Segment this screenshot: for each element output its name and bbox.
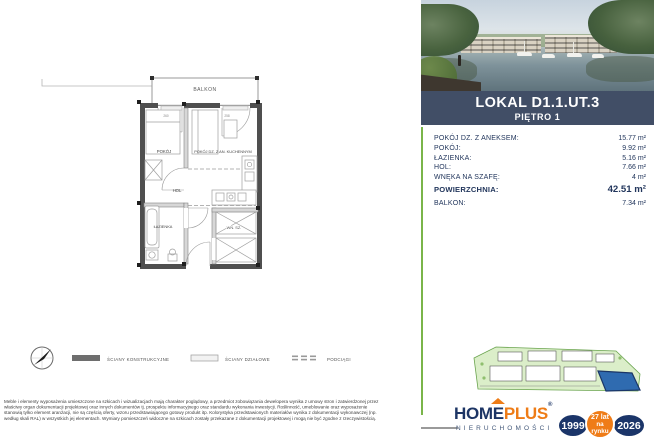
closet-wardrobes: [216, 212, 256, 262]
badge-2026-text: 2026: [614, 420, 644, 432]
area-value: 9.92 m²: [622, 145, 646, 152]
dim-label-2: 258: [224, 114, 230, 118]
floor-plan: BALKON: [0, 0, 420, 443]
flyer-page: BALKON: [0, 0, 654, 443]
unit-title: LOKAL D1.1.UT.3: [421, 95, 654, 111]
dim-label-1: 260: [163, 114, 169, 118]
legend-swatch-beams: [292, 356, 316, 361]
bathroom-door-opening: [184, 208, 188, 228]
disclaimer-line-1: Meble i elementy wyposażenia umieszczone…: [4, 399, 379, 404]
legend-label-partition: ŚCIANY DZIAŁOWE: [225, 357, 270, 362]
area-value: 15.77 m²: [618, 135, 646, 142]
badge-years-on-market: 27 lat na rynku: [585, 409, 615, 439]
boat: [567, 53, 582, 57]
badge-market-text: na rynku: [587, 421, 613, 435]
homeplus-logo: HOMEPLUS® NIERUCHOMOŚCI: [454, 404, 572, 432]
area-label: POWIERZCHNIA:: [434, 185, 499, 194]
area-value: 5.16 m²: [622, 155, 646, 162]
area-label: ŁAZIENKA:: [434, 155, 472, 162]
area-value: 4 m²: [632, 174, 646, 181]
disclaimer-text: Meble i elementy wyposażenia umieszczone…: [4, 399, 379, 421]
balcony-label: BALKON: [193, 87, 216, 93]
area-row-total: POWIERZCHNIA: 42.51 m²: [434, 184, 646, 195]
green-accent-line: [421, 127, 423, 415]
area-table: POKÓJ DZ. Z ANEKSEM: 15.77 m² POKÓJ: 9.9…: [434, 135, 646, 210]
area-row: POKÓJ DZ. Z ANEKSEM: 15.77 m²: [434, 135, 646, 142]
unit-info-panel: LOKAL D1.1.UT.3 PIĘTRO 1 POKÓJ DZ. Z ANE…: [421, 0, 654, 443]
logo-wordmark: HOMEPLUS®: [454, 404, 572, 424]
badge-years-text: 27 lat: [587, 414, 613, 421]
logo-plus: PLUS: [504, 404, 548, 423]
room-label-lazienka: ŁAZIENKA: [154, 224, 173, 229]
boat-mast: [524, 41, 525, 52]
footer-divider: [421, 427, 458, 429]
closet-opening: [212, 238, 216, 260]
disclaimer-line-4: według skali RAL) w wszystkich jej eleme…: [4, 416, 376, 421]
logo-hom: HOM: [454, 404, 493, 423]
boat: [542, 54, 555, 58]
area-value: 7.66 m²: [622, 164, 646, 171]
area-row: BALKON: 7.34 m²: [434, 200, 646, 207]
person-silhouette: [458, 55, 461, 66]
disclaimer-line-2: właściwy organ dokumentacji projektowej …: [4, 405, 368, 410]
logo-e-roof-icon: E: [493, 404, 504, 423]
disclaimer-line-3: stanowią tylko element aranżacji, nie są…: [4, 410, 377, 415]
badge-1999-text: 1999: [559, 420, 587, 432]
badge-year-2026: 2026: [612, 413, 646, 438]
area-label: POKÓJ:: [434, 145, 461, 152]
area-row: HOL: 7.66 m²: [434, 164, 646, 171]
unit-header: LOKAL D1.1.UT.3 PIĘTRO 1: [421, 91, 654, 125]
compass-icon: [30, 346, 54, 370]
balcony: BALKON: [150, 76, 259, 103]
room-label-pokoj: POKÓJ: [157, 149, 172, 154]
bathroom-fixtures: [145, 206, 177, 261]
room-label-pokoj-dz: POKÓJ DZ. Z AN. KUCHENNYM: [194, 149, 252, 154]
development-photo: [421, 0, 654, 91]
site-plan-icon: [468, 344, 648, 400]
legend-swatch-partition: [191, 355, 218, 361]
legend-swatch-structural: [72, 355, 100, 361]
area-row: ŁAZIENKA: 5.16 m²: [434, 155, 646, 162]
neighbour-balcony-line: [42, 79, 152, 86]
area-label: WNĘKA NA SZAFĘ:: [434, 174, 500, 181]
registered-mark: ®: [548, 402, 552, 408]
area-label: POKÓJ DZ. Z ANEKSEM:: [434, 135, 519, 142]
room-label-wn-sz: WN. SZ.: [227, 225, 242, 230]
legend-label-beams: PODCIĄGI: [327, 357, 351, 362]
logo-subtitle: NIERUCHOMOŚCI: [456, 425, 572, 432]
area-row: POKÓJ: 9.92 m²: [434, 145, 646, 152]
room-label-hol: HOL: [173, 188, 182, 193]
boat: [592, 54, 604, 58]
area-value: 7.34 m²: [622, 200, 646, 207]
water-reflection-right: [586, 56, 654, 82]
unit-floor: PIĘTRO 1: [421, 112, 654, 122]
area-value: 42.51 m²: [608, 184, 646, 195]
area-label: BALKON:: [434, 200, 466, 207]
legend-label-structural: ŚCIANY KONSTRUKCYJNE: [107, 357, 169, 362]
plan-legend: ŚCIANY KONSTRUKCYJNE ŚCIANY DZIAŁOWE POD…: [30, 346, 351, 370]
area-row: WNĘKA NA SZAFĘ: 4 m²: [434, 174, 646, 181]
boat-mast: [573, 42, 574, 53]
boat: [517, 52, 532, 56]
area-label: HOL:: [434, 164, 451, 171]
